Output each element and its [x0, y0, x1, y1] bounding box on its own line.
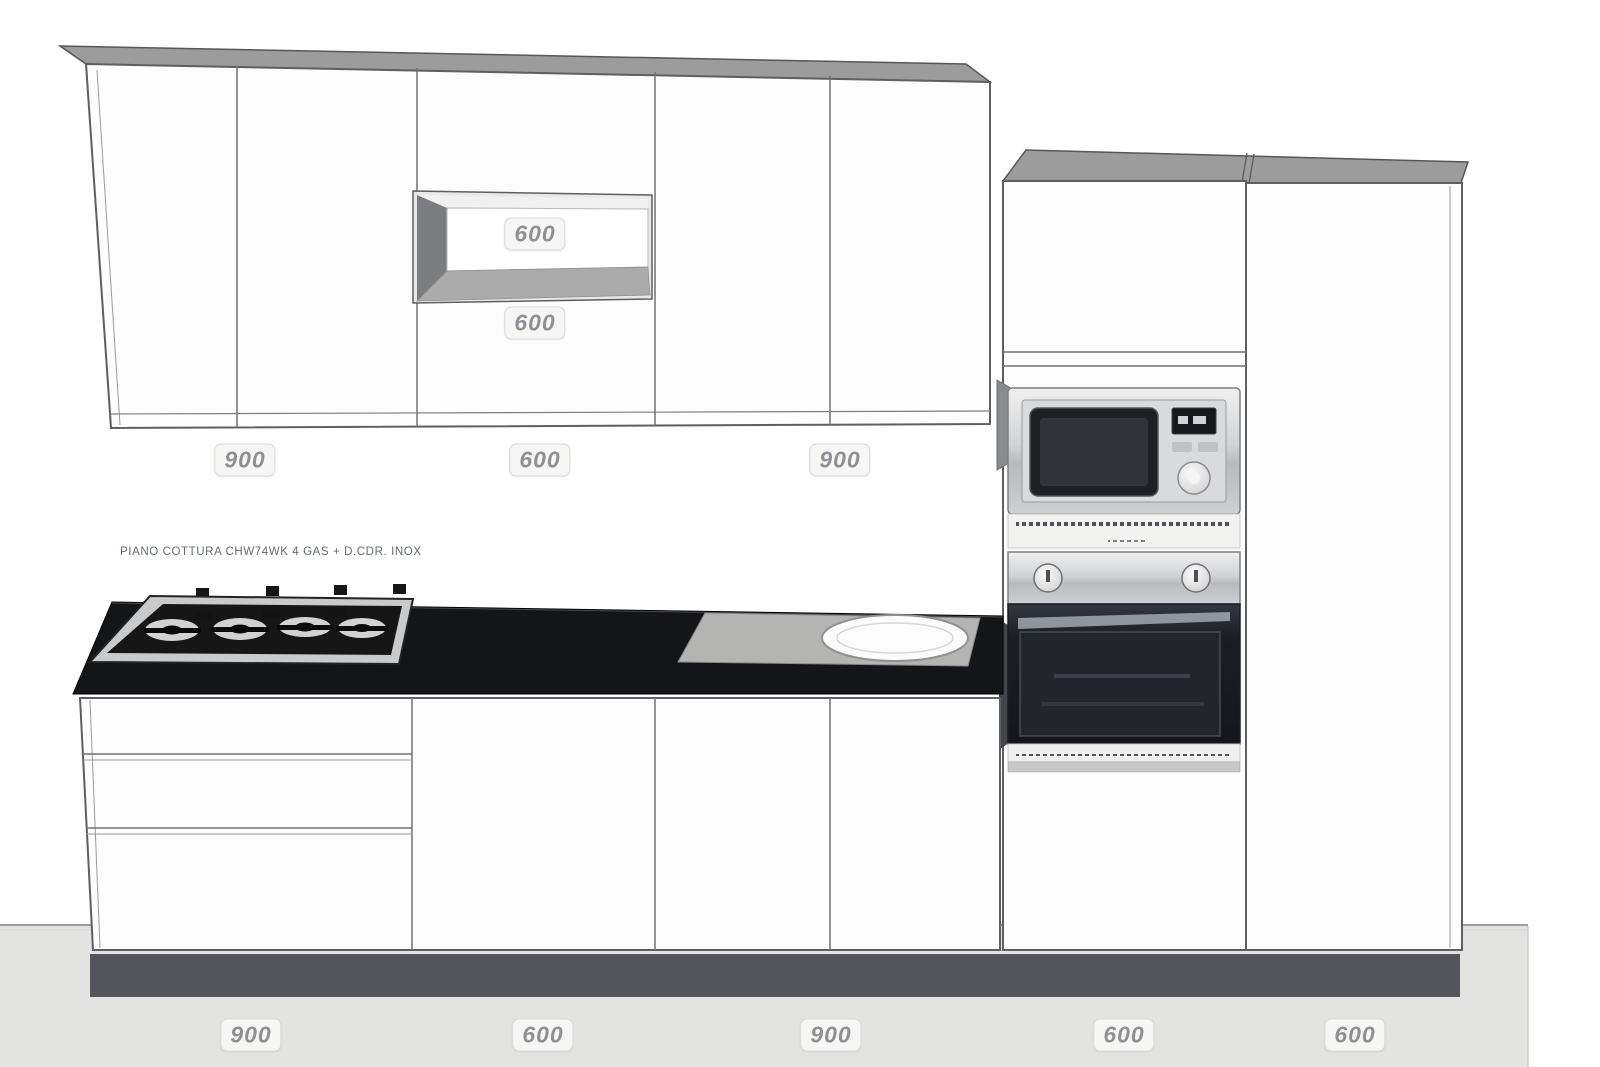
- sink-bowl[interactable]: [822, 615, 968, 661]
- tall-units[interactable]: [997, 150, 1468, 950]
- dimension-badge-tall-pantry: 600: [1324, 1019, 1385, 1052]
- dimension-badge-base-left: 900: [220, 1019, 281, 1052]
- kitchen-render-canvas[interactable]: 900 600 900 600 600 900 600 900 600 600 …: [0, 0, 1600, 1067]
- microwave-dial-hub: [1188, 472, 1200, 484]
- microwave-microtext: [1016, 521, 1232, 527]
- dimension-badge-base-mid: 600: [512, 1019, 573, 1052]
- oven-shelf-line: [1054, 674, 1190, 678]
- dimension-badge-wall-right: 900: [809, 444, 870, 477]
- hob-grate-tip: [334, 585, 347, 595]
- dimension-badge-niche-below: 600: [504, 307, 565, 340]
- hob-rear-grate: [328, 609, 346, 617]
- tall-unit-pantry[interactable]: [1246, 183, 1462, 950]
- hob-product-label: PIANO COTTURA CHW74WK 4 GAS + D.CDR. INO…: [120, 546, 422, 558]
- dimension-badge-tall-appliance: 600: [1093, 1019, 1154, 1052]
- hob-rear-grate: [262, 610, 280, 618]
- microwave-brand-mark: [1108, 540, 1148, 546]
- base-cabinets[interactable]: [80, 698, 1000, 950]
- oven-knob-right-notch: [1194, 570, 1198, 582]
- base-cabinet-front[interactable]: [80, 698, 1000, 950]
- oven-bottom-trim: [1008, 762, 1240, 772]
- hob-grate-tip: [266, 586, 279, 596]
- oven-inner-window: [1020, 632, 1220, 736]
- microwave-button[interactable]: [1198, 442, 1218, 452]
- plinth: [90, 954, 1460, 997]
- dimension-badge-wall-left: 900: [214, 444, 275, 477]
- oven-shelf-line: [1042, 702, 1204, 706]
- oven-knob-left-notch: [1046, 570, 1050, 582]
- microwave-display-digit: [1193, 416, 1206, 424]
- microwave[interactable]: [1008, 388, 1240, 548]
- hob-grate-tip: [393, 584, 406, 594]
- gas-hob[interactable]: [90, 584, 413, 664]
- sink[interactable]: [678, 613, 980, 666]
- worktop-assembly[interactable]: [73, 584, 1003, 694]
- dimension-badge-wall-mid: 600: [509, 444, 570, 477]
- hob-rear-grate: [195, 612, 213, 620]
- oven[interactable]: [1008, 552, 1240, 772]
- oven-microtext: [1016, 750, 1232, 756]
- dimension-badge-niche: 600: [504, 218, 565, 251]
- dimension-badge-base-right: 900: [800, 1019, 861, 1052]
- microwave-button[interactable]: [1172, 442, 1192, 452]
- microwave-display-digit: [1178, 416, 1188, 424]
- microwave-window-glass: [1040, 418, 1148, 486]
- niche-shelf: [417, 267, 650, 301]
